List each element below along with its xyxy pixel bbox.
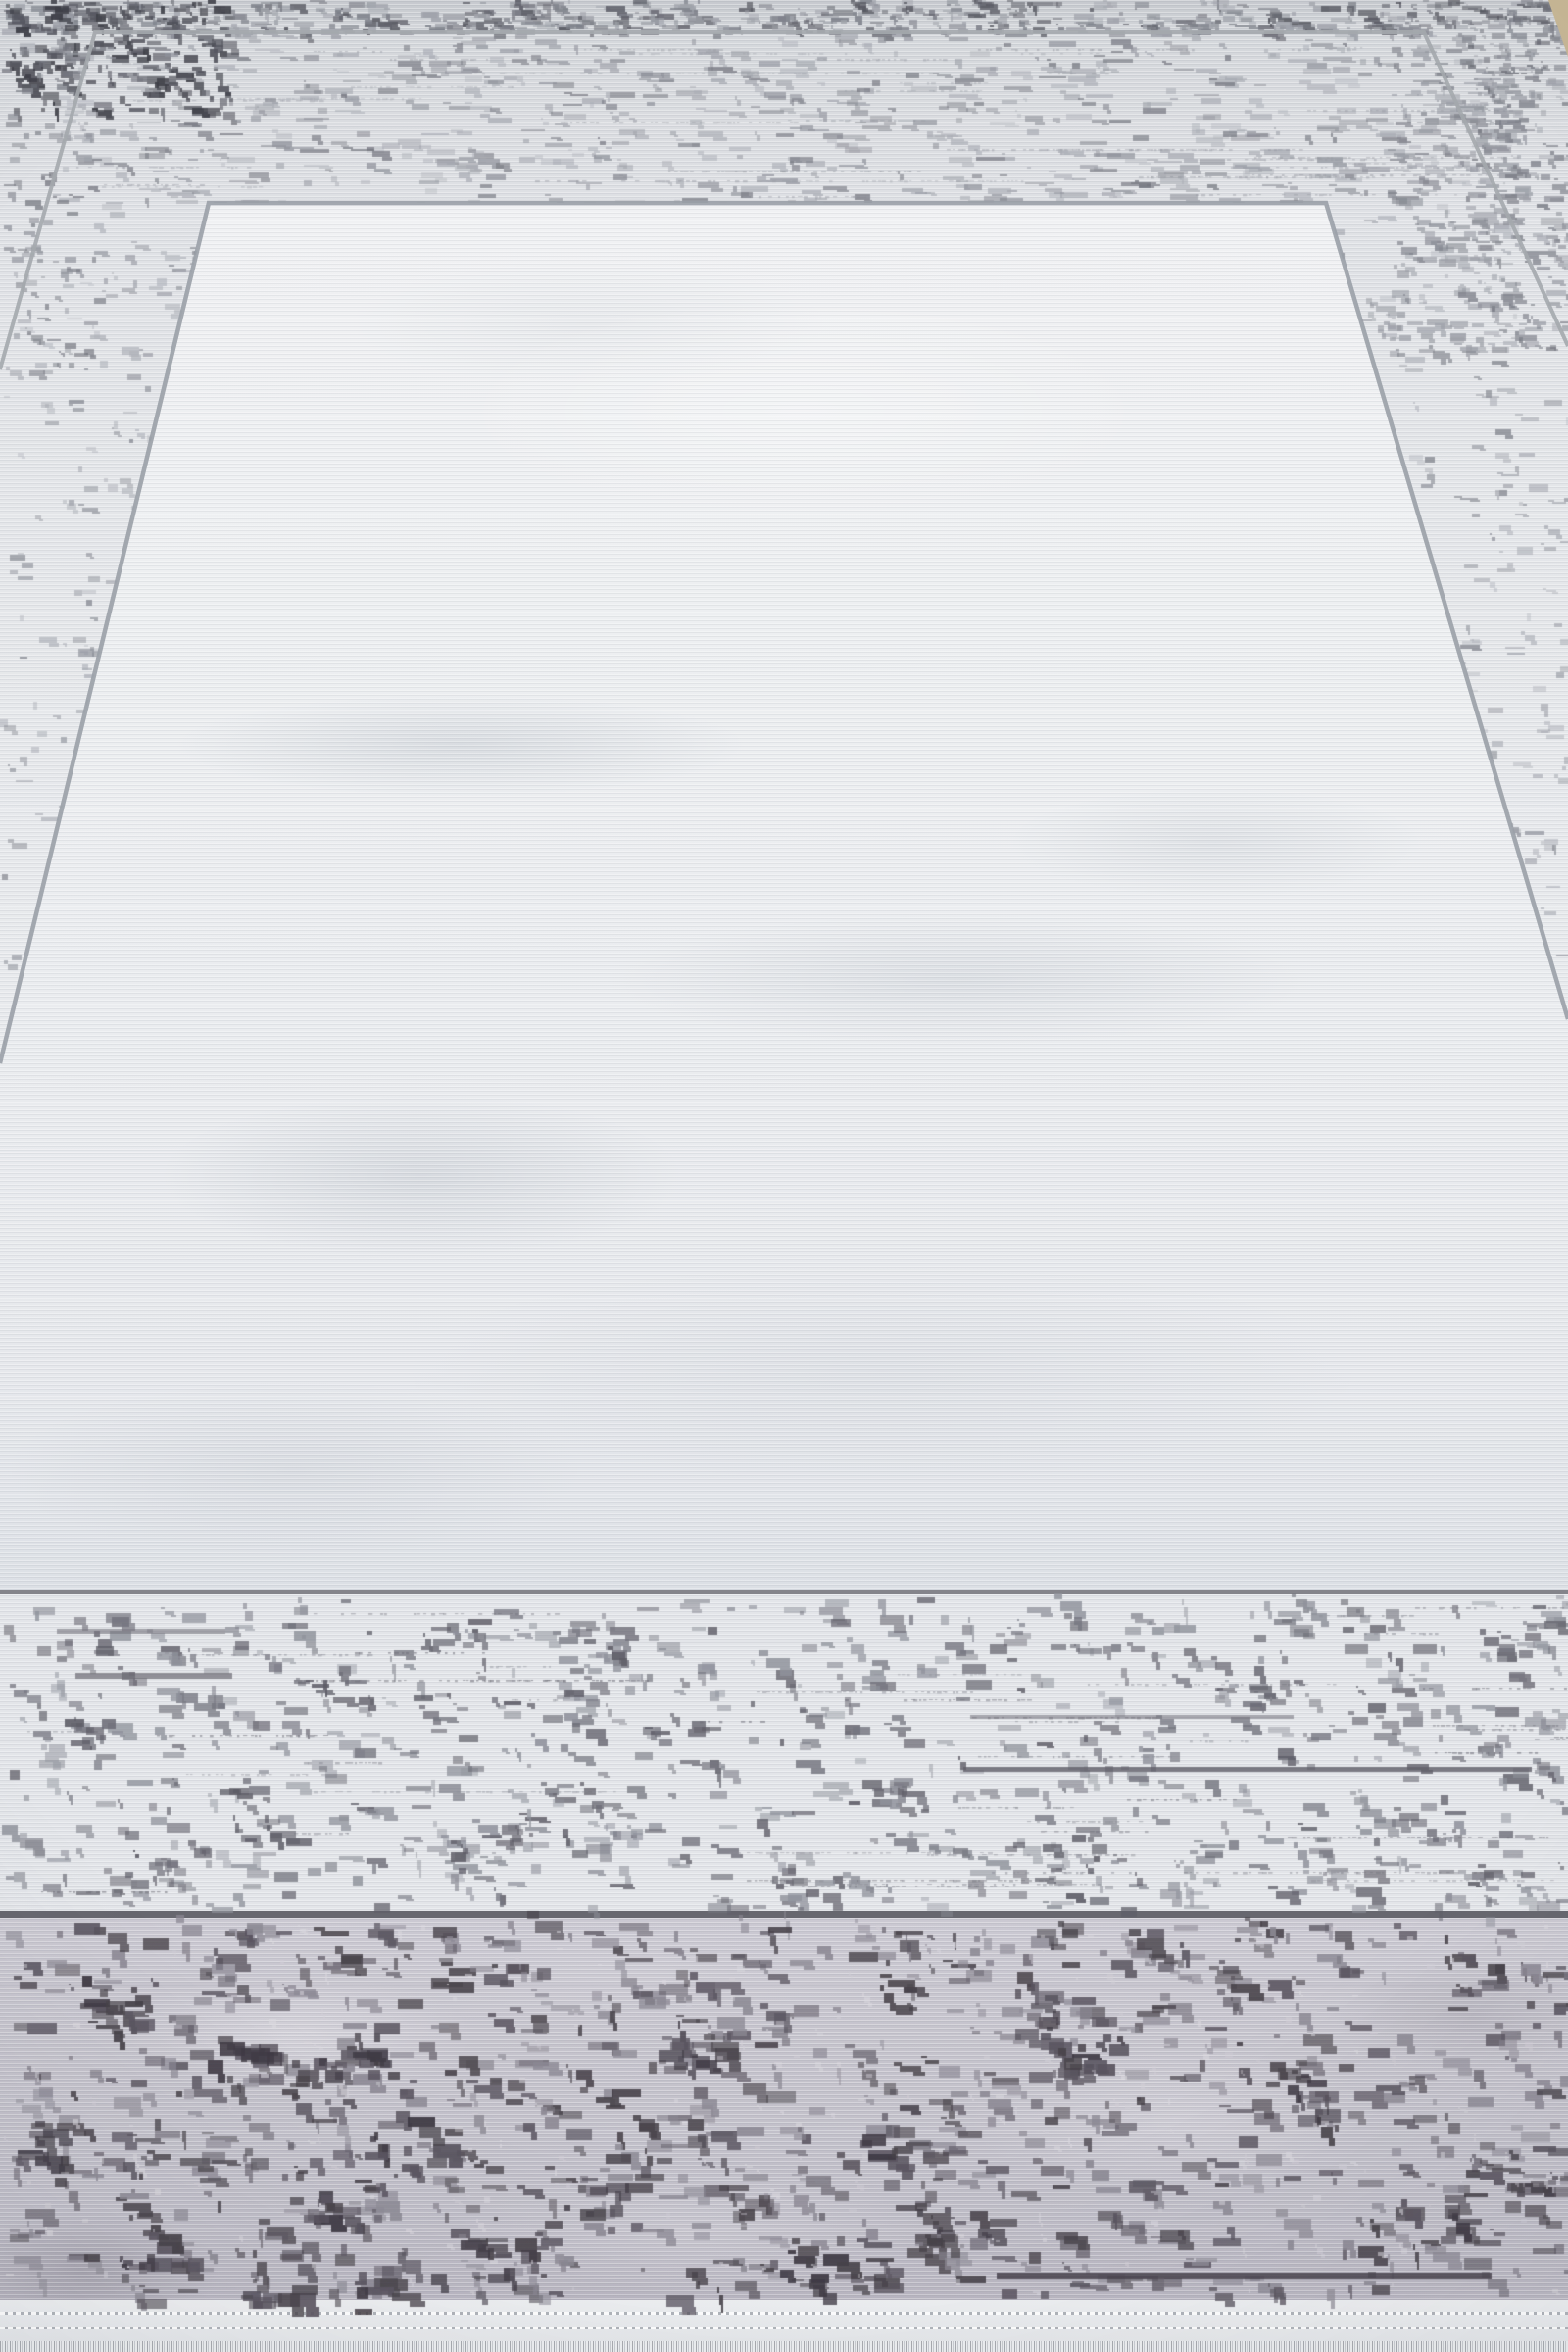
rug-photo xyxy=(0,0,1568,2352)
inner-frame-line xyxy=(0,203,1568,1063)
distressed-texture-near xyxy=(0,1590,1568,2352)
border-frame-lines xyxy=(0,0,1568,1590)
